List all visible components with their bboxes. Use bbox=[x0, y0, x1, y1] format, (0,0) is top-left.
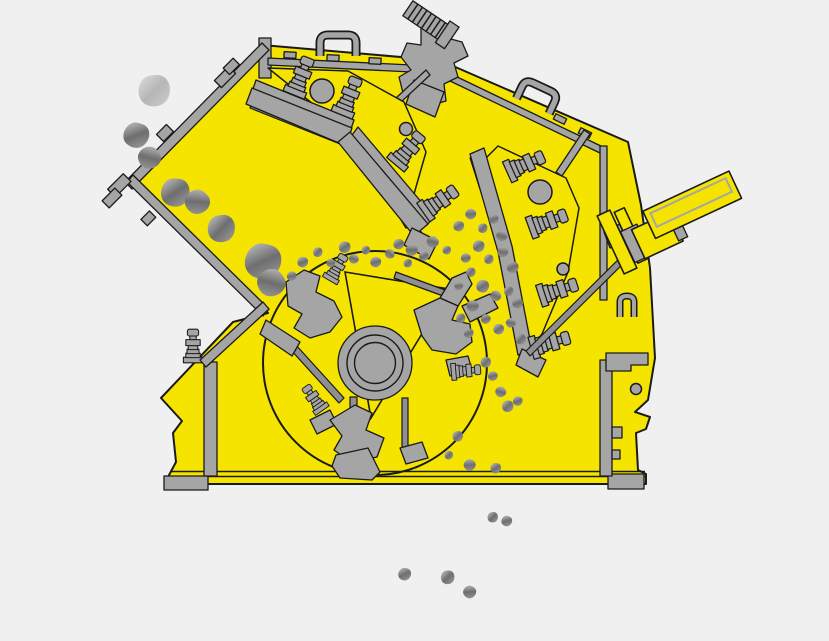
wall-tab bbox=[612, 427, 622, 438]
plate-hole bbox=[557, 263, 569, 275]
rock-particle bbox=[466, 267, 475, 276]
rock-particle bbox=[208, 215, 235, 242]
rock-particle bbox=[362, 246, 370, 254]
rock-particle bbox=[484, 254, 493, 263]
plate-hole bbox=[400, 123, 413, 136]
wall-tab bbox=[612, 450, 620, 459]
right-foot-pad bbox=[608, 474, 644, 489]
chute-tab bbox=[141, 211, 156, 226]
left-foot-pad bbox=[164, 476, 208, 490]
cylinder-outer-tube bbox=[643, 171, 742, 238]
rock-particle bbox=[453, 431, 463, 442]
rock-particle bbox=[500, 514, 514, 528]
rock-particle bbox=[504, 286, 513, 295]
rock-particle bbox=[456, 313, 465, 322]
rock-particle bbox=[502, 400, 514, 412]
impact-crusher-diagram bbox=[0, 0, 829, 641]
diagram-canvas bbox=[0, 0, 829, 641]
rock-particle bbox=[397, 566, 413, 582]
roof-tab bbox=[369, 58, 381, 65]
rock-particle bbox=[481, 357, 491, 368]
hammer-strap bbox=[402, 398, 408, 452]
left-support-strut bbox=[204, 362, 217, 476]
roof-tab bbox=[327, 55, 339, 62]
rock-particle bbox=[404, 259, 412, 267]
rotor-hub bbox=[338, 326, 412, 400]
rock-particle bbox=[139, 75, 170, 107]
rock-particle bbox=[478, 223, 487, 232]
rock-particle bbox=[488, 512, 498, 523]
discharge-particles bbox=[397, 512, 514, 601]
rock-particle bbox=[313, 247, 322, 256]
right-support-strut bbox=[600, 360, 612, 476]
rock-particle bbox=[445, 451, 453, 459]
wall-bolt-hole bbox=[631, 384, 642, 395]
strut-anchor-bolt bbox=[183, 329, 202, 363]
plate-hole bbox=[528, 180, 552, 204]
plate-hole bbox=[310, 79, 334, 103]
roof-tab bbox=[284, 52, 296, 59]
rock-particle bbox=[461, 583, 479, 601]
rock-particle bbox=[441, 570, 455, 584]
rock-particle bbox=[516, 334, 526, 345]
